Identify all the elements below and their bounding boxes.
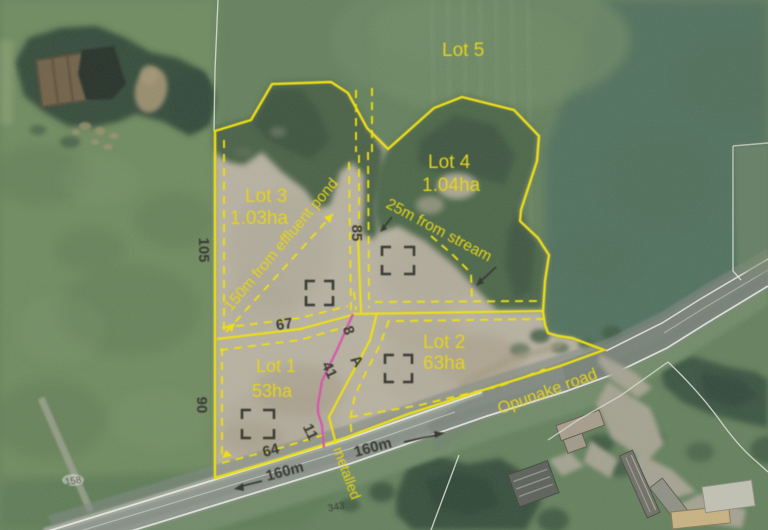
svg-text:63ha: 63ha [423,353,466,374]
svg-text:Lot 5: Lot 5 [442,40,484,61]
svg-text:1.04ha: 1.04ha [422,175,481,196]
svg-text:105: 105 [195,237,212,262]
svg-text:Lot 3: Lot 3 [245,186,287,207]
svg-text:53ha: 53ha [252,381,293,401]
svg-text:Lot 4: Lot 4 [428,152,471,173]
svg-text:85: 85 [348,225,365,242]
svg-text:Lot 2: Lot 2 [423,332,465,353]
svg-text:90: 90 [193,397,210,414]
svg-text:1.03ha: 1.03ha [230,208,289,229]
svg-text:Lot 1: Lot 1 [256,356,296,376]
svg-text:67: 67 [275,315,294,334]
